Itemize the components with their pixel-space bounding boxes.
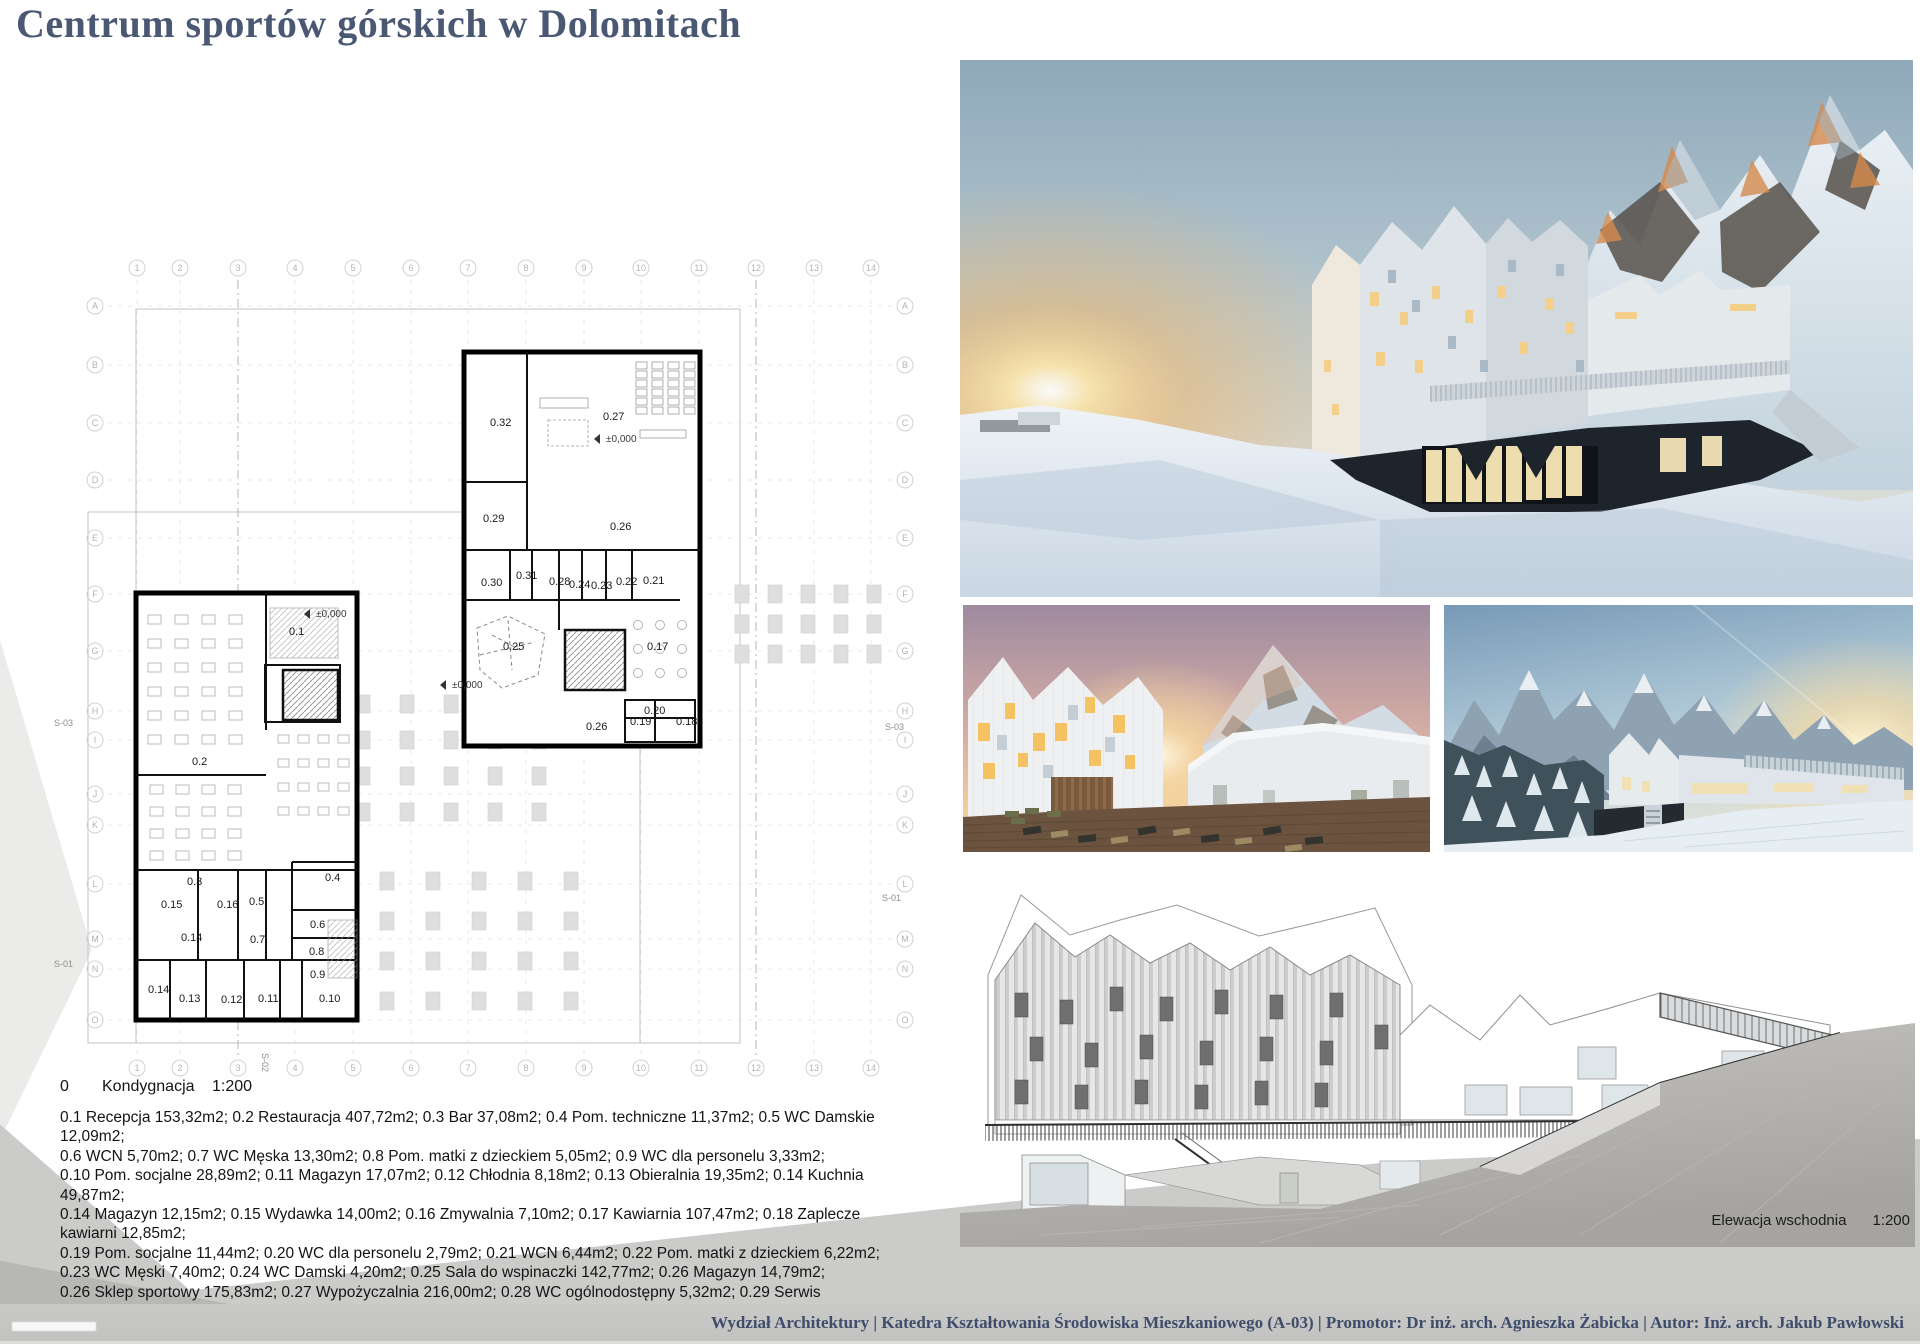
grid-column-label: 13 (809, 1063, 819, 1073)
storey-name: Kondygnacja (102, 1078, 212, 1096)
grid-row-label: N (92, 964, 99, 974)
room-label: 0.11 (258, 993, 279, 1005)
grid-column-label: 3 (235, 263, 240, 273)
plan-scale-line: 0 Kondygnacja 1:200 (60, 1078, 880, 1096)
grid-row-label: A (902, 301, 908, 311)
room-label: 0.19 (630, 716, 651, 728)
elevation-caption-scale: 1:200 (1872, 1212, 1910, 1229)
grid-row-label: J (903, 789, 908, 799)
grid-row-label: A (92, 301, 98, 311)
room-label: 0.6 (310, 919, 325, 931)
grid-row-label: K (902, 820, 908, 830)
room-label: 0.32 (490, 417, 511, 429)
grid-column-label: 13 (809, 263, 819, 273)
elevation-caption-label: Elewacja wschodnia (1711, 1212, 1846, 1229)
room-schedule-line: 0.1 Recepcja 153,32m2; 0.2 Restauracja 4… (60, 1108, 880, 1147)
room-label: 0.22 (616, 576, 637, 588)
room-schedule-line: 0.19 Pom. socjalne 11,44m2; 0.20 WC dla … (60, 1244, 880, 1263)
level-marker: ±0,000 (452, 680, 483, 691)
elevation-caption: Elewacja wschodnia1:200 (1600, 1212, 1910, 1229)
elevation-drawing (960, 875, 1915, 1247)
grid-row-label: D (902, 475, 909, 485)
room-label: 0.9 (310, 969, 325, 981)
room-label: 0.26 (610, 521, 631, 533)
grid-row-label: K (92, 820, 98, 830)
grid-column-label: 2 (177, 263, 182, 273)
room-label: 0.21 (643, 575, 664, 587)
section-marker: S-02 (260, 1053, 270, 1072)
grid-row-label: B (902, 360, 908, 370)
grid-column-label: 8 (523, 263, 528, 273)
room-schedule-line: 0.23 WC Męski 7,40m2; 0.24 WC Damski 4,2… (60, 1263, 880, 1282)
floor-plan-drawing: 11223344556677889910101111121213131414AA… (40, 130, 920, 1080)
small-render-courtyard (963, 605, 1430, 852)
level-marker: ±0,000 (606, 434, 637, 445)
grid-row-label: H (92, 706, 99, 716)
plan-scale: 1:200 (212, 1078, 252, 1096)
room-label: 0.23 (591, 580, 612, 592)
room-label: 0.14 (181, 932, 202, 944)
grid-row-label: I (904, 735, 907, 745)
room-schedule-line: 0.6 WCN 5,70m2; 0.7 WC Męska 13,30m2; 0.… (60, 1147, 880, 1166)
watermark-mark (12, 1322, 96, 1331)
grid-row-label: E (92, 533, 98, 543)
room-label: 0.17 (647, 641, 668, 653)
grid-column-label: 1 (134, 1063, 139, 1073)
storey-number: 0 (60, 1078, 102, 1096)
grid-row-label: M (91, 934, 99, 944)
room-label: 0.30 (481, 577, 502, 589)
grid-column-label: 11 (694, 1063, 703, 1073)
grid-column-label: 6 (408, 1063, 413, 1073)
grid-row-label: E (902, 533, 908, 543)
room-label: 0.10 (319, 993, 340, 1005)
room-schedule-line: 0.14 Magazyn 12,15m2; 0.15 Wydawka 14,00… (60, 1205, 880, 1244)
room-label: 0.25 (503, 641, 524, 653)
grid-row-label: O (901, 1015, 908, 1025)
grid-row-label: H (902, 706, 909, 716)
section-marker: S-03 (54, 718, 73, 728)
grid-column-label: 5 (350, 263, 355, 273)
grid-row-label: L (92, 879, 97, 889)
room-label: 0.2 (192, 756, 207, 768)
grid-row-label: J (93, 789, 98, 799)
grid-row-label: L (902, 879, 907, 889)
section-marker: S-03 (885, 722, 904, 732)
room-label: 0.29 (483, 513, 504, 525)
room-label: 0.18 (676, 716, 697, 728)
grid-column-label: 3 (235, 1063, 240, 1073)
large-render-image (960, 60, 1913, 597)
room-label: 0.14 (148, 984, 169, 996)
grid-row-label: G (91, 646, 98, 656)
grid-column-label: 10 (636, 263, 646, 273)
small-render-panorama (1444, 605, 1913, 852)
room-label: 0.26 (586, 721, 607, 733)
footer-bar: Wydział Architektury | Katedra Kształtow… (0, 1304, 1920, 1344)
grid-column-label: 4 (292, 263, 297, 273)
grid-row-label: O (91, 1015, 98, 1025)
grid-column-label: 14 (866, 263, 876, 273)
grid-row-label: N (902, 964, 909, 974)
room-label: 0.7 (250, 934, 265, 946)
room-label: 0.28 (549, 576, 570, 588)
grid-column-label: 1 (134, 263, 139, 273)
section-marker: S-01 (882, 893, 901, 903)
grid-row-label: I (94, 735, 97, 745)
section-marker: S-01 (54, 959, 73, 969)
grid-row-label: B (92, 360, 98, 370)
room-label: 0.1 (289, 626, 304, 638)
grid-column-label: 4 (292, 1063, 297, 1073)
room-label: 0.8 (309, 946, 324, 958)
grid-row-label: F (902, 589, 908, 599)
grid-column-label: 11 (694, 263, 703, 273)
room-schedule-line: 0.10 Pom. socjalne 28,89m2; 0.11 Magazyn… (60, 1166, 880, 1205)
room-label: 0.3 (187, 876, 202, 888)
grid-row-label: C (92, 418, 99, 428)
level-marker: ±0,000 (316, 609, 347, 620)
grid-column-label: 8 (523, 1063, 528, 1073)
grid-column-label: 2 (177, 1063, 182, 1073)
room-label: 0.16 (217, 899, 238, 911)
page-title: Centrum sportów górskich w Dolomitach (16, 0, 741, 47)
grid-row-label: F (92, 589, 98, 599)
grid-row-label: G (901, 646, 908, 656)
presentation-board: Centrum sportów górskich w Dolomitach 11… (0, 0, 1920, 1344)
courtyard-building-left (968, 657, 1163, 821)
room-label: 0.24 (569, 579, 590, 591)
grid-column-label: 7 (465, 263, 470, 273)
room-label: 0.12 (221, 994, 242, 1006)
room-label: 0.13 (179, 993, 200, 1005)
grid-column-label: 12 (751, 263, 761, 273)
grid-column-label: 6 (408, 263, 413, 273)
room-label: 0.5 (249, 896, 264, 908)
building-upper (464, 352, 700, 746)
grid-column-label: 9 (581, 1063, 586, 1073)
grid-row-label: C (902, 418, 909, 428)
grid-column-label: 12 (751, 1063, 761, 1073)
room-label: 0.15 (161, 899, 182, 911)
grid-column-label: 10 (636, 1063, 646, 1073)
room-label: 0.27 (603, 411, 624, 423)
grid-row-label: D (92, 475, 99, 485)
grid-column-label: 7 (465, 1063, 470, 1073)
footer-credits: Wydział Architektury | Katedra Kształtow… (711, 1313, 1920, 1333)
room-label: 0.4 (325, 872, 340, 884)
grid-column-label: 9 (581, 263, 586, 273)
room-label: 0.31 (516, 570, 537, 582)
grid-row-label: M (901, 934, 909, 944)
grid-column-label: 5 (350, 1063, 355, 1073)
grid-column-label: 14 (866, 1063, 876, 1073)
